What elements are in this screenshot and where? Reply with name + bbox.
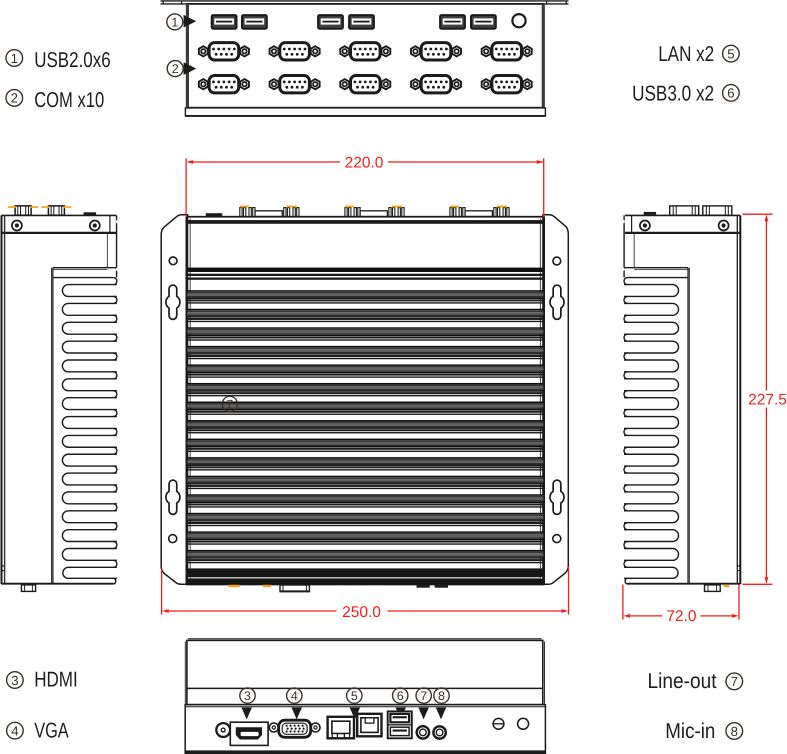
- svg-text:7: 7: [731, 674, 738, 689]
- svg-text:6: 6: [727, 86, 734, 101]
- svg-text:Line-out: Line-out: [648, 669, 717, 693]
- svg-text:4: 4: [291, 689, 298, 703]
- svg-text:Mic-in: Mic-in: [665, 719, 715, 743]
- svg-text:227.5: 227.5: [748, 391, 787, 408]
- svg-text:3: 3: [244, 689, 251, 703]
- svg-text:250.0: 250.0: [342, 604, 381, 621]
- svg-text:5: 5: [727, 46, 734, 61]
- svg-text:VGA: VGA: [34, 719, 69, 743]
- svg-text:USB3.0 x2: USB3.0 x2: [632, 82, 714, 106]
- svg-text:2: 2: [11, 91, 18, 106]
- svg-text:8: 8: [438, 689, 445, 703]
- svg-text:5: 5: [351, 689, 358, 703]
- svg-text:7: 7: [420, 689, 427, 703]
- svg-text:1: 1: [11, 51, 18, 66]
- svg-text:6: 6: [397, 689, 404, 703]
- svg-text:220.0: 220.0: [345, 154, 384, 171]
- svg-text:72.0: 72.0: [666, 608, 697, 625]
- svg-text:1: 1: [171, 15, 178, 29]
- svg-text:3: 3: [11, 673, 18, 688]
- svg-text:USB2.0x6: USB2.0x6: [34, 48, 111, 72]
- svg-text:2: 2: [172, 62, 179, 76]
- svg-text:8: 8: [731, 724, 738, 739]
- svg-text:7: 7: [227, 397, 234, 411]
- svg-text:LAN x2: LAN x2: [658, 42, 714, 66]
- svg-text:4: 4: [11, 723, 18, 738]
- svg-text:COM x10: COM x10: [34, 88, 104, 112]
- svg-text:HDMI: HDMI: [34, 667, 77, 691]
